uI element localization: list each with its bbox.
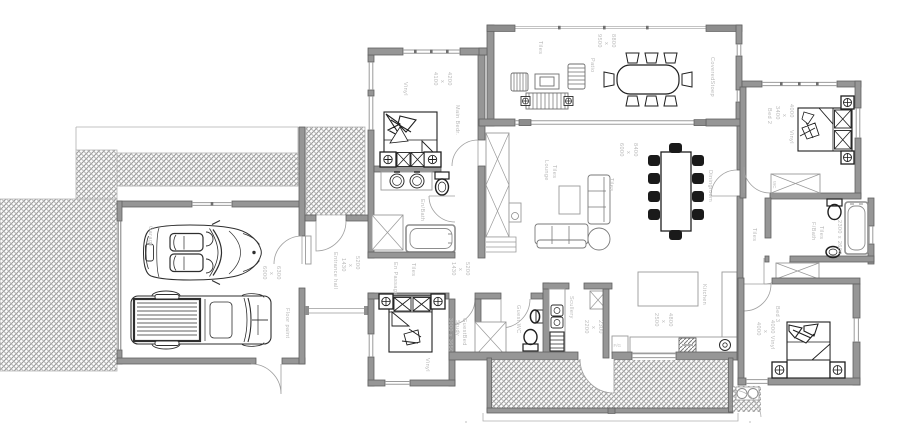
svg-text:Tiles: Tiles xyxy=(751,228,757,241)
svg-text:F/Bath: F/Bath xyxy=(810,222,816,241)
svg-text:En/Bath: En/Bath xyxy=(419,199,425,221)
svg-text:2300: 2300 xyxy=(597,320,603,334)
svg-text:9500: 9500 xyxy=(596,34,602,48)
svg-text:Garage: Garage xyxy=(147,226,153,247)
svg-text:1430: 1430 xyxy=(450,262,456,276)
svg-text:Tiles: Tiles xyxy=(818,226,824,239)
svg-text:5200: 5200 xyxy=(464,262,470,276)
svg-text:4000 Vinyl: 4000 Vinyl xyxy=(769,320,775,350)
svg-text:Kitchen: Kitchen xyxy=(701,284,707,305)
svg-text:4200: 4200 xyxy=(446,72,452,86)
svg-text:2500: 2500 xyxy=(653,313,659,327)
svg-text:6000: 6000 xyxy=(618,143,624,157)
svg-text:Tiles: Tiles xyxy=(608,178,614,191)
svg-text:x: x xyxy=(762,330,768,333)
svg-text:Floor paint: Floor paint xyxy=(284,308,290,338)
svg-text:x: x xyxy=(660,320,666,323)
svg-text:4100: 4100 xyxy=(432,72,438,86)
svg-text:3400: 3400 xyxy=(774,106,780,120)
svg-text:x: x xyxy=(590,326,596,329)
svg-text:4800: 4800 xyxy=(667,313,673,327)
svg-text:5200: 5200 xyxy=(354,256,360,270)
svg-text:3000 x 3650: 3000 x 3650 xyxy=(447,318,453,353)
svg-text:Patio: Patio xyxy=(589,58,595,73)
svg-text:Bed 2: Bed 2 xyxy=(766,108,772,124)
svg-text:GuestBed: GuestBed xyxy=(461,318,467,346)
svg-text:x: x xyxy=(781,114,787,117)
svg-text:6000: 6000 xyxy=(261,266,267,280)
svg-text:x: x xyxy=(439,80,445,83)
svg-text:Tiles: Tiles xyxy=(410,263,416,276)
svg-text:CoveredStoep: CoveredStoep xyxy=(709,57,715,97)
svg-text:1430: 1430 xyxy=(340,258,346,272)
svg-text:x: x xyxy=(347,264,353,267)
svg-text:Vinyl: Vinyl xyxy=(788,130,794,144)
svg-text:2300 x 2600: 2300 x 2600 xyxy=(836,220,842,255)
svg-text:4000: 4000 xyxy=(755,322,761,336)
svg-text:Lounge: Lounge xyxy=(543,160,549,181)
svg-text:Vinyl: Vinyl xyxy=(402,82,408,96)
svg-text:4000: 4000 xyxy=(788,104,794,118)
svg-text:8800: 8800 xyxy=(610,34,616,48)
svg-text:Tiles: Tiles xyxy=(537,41,543,54)
svg-text:Guest WC: Guest WC xyxy=(515,305,521,334)
svg-text:8400: 8400 xyxy=(632,143,638,157)
svg-text:Scullery: Scullery xyxy=(568,296,574,319)
svg-text:x: x xyxy=(268,272,274,275)
svg-text:x: x xyxy=(603,42,609,45)
svg-text:Diningroom: Diningroom xyxy=(707,170,713,202)
svg-text:En Passage: En Passage xyxy=(392,262,398,296)
svg-text:WC: WC xyxy=(772,181,777,189)
svg-text:Entrance hall: Entrance hall xyxy=(332,252,338,289)
svg-text:Main Bedr.: Main Bedr. xyxy=(454,105,460,135)
svg-text:2200: 2200 xyxy=(583,320,589,334)
svg-text:6300: 6300 xyxy=(275,266,281,280)
svg-text:Vinyl: Vinyl xyxy=(424,358,430,372)
svg-text:F/G: F/G xyxy=(614,343,622,348)
svg-text:Study: Study xyxy=(454,320,460,336)
svg-text:x: x xyxy=(457,268,463,271)
svg-text:x: x xyxy=(625,151,631,154)
svg-text:Tiles: Tiles xyxy=(551,165,557,178)
